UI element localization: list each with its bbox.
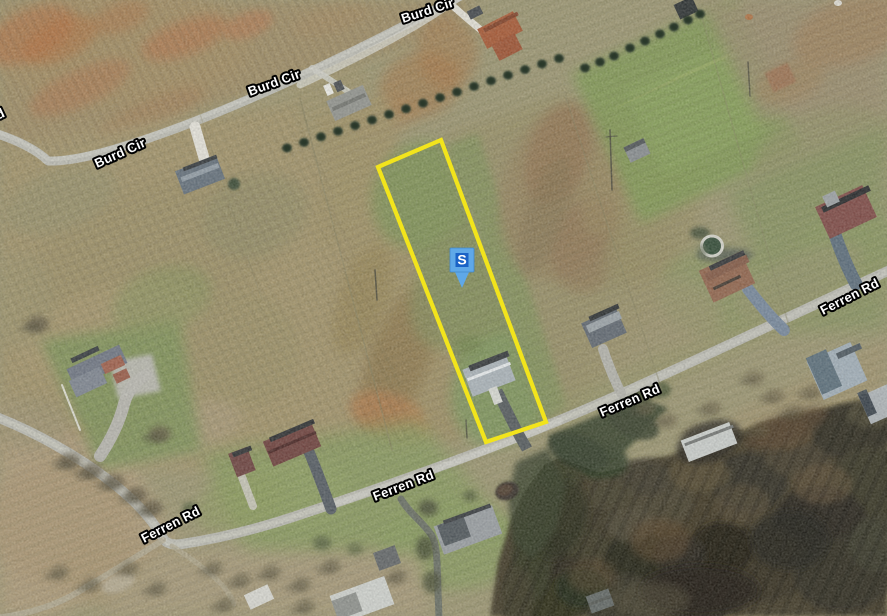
svg-text:S: S bbox=[457, 252, 466, 268]
